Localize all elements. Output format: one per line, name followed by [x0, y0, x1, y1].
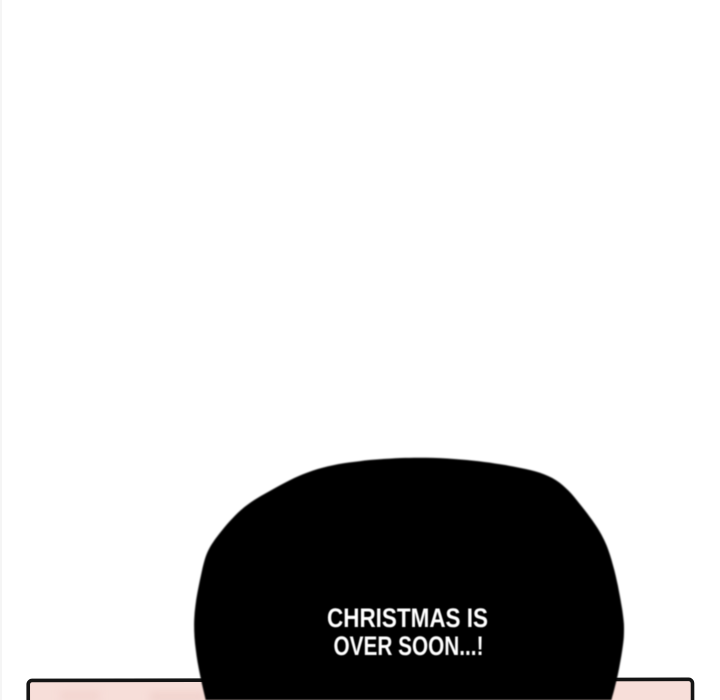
- svg-text:CHRISTMAS IS: CHRISTMAS IS: [327, 603, 488, 633]
- svg-text:OVER SOON...!: OVER SOON...!: [334, 631, 484, 661]
